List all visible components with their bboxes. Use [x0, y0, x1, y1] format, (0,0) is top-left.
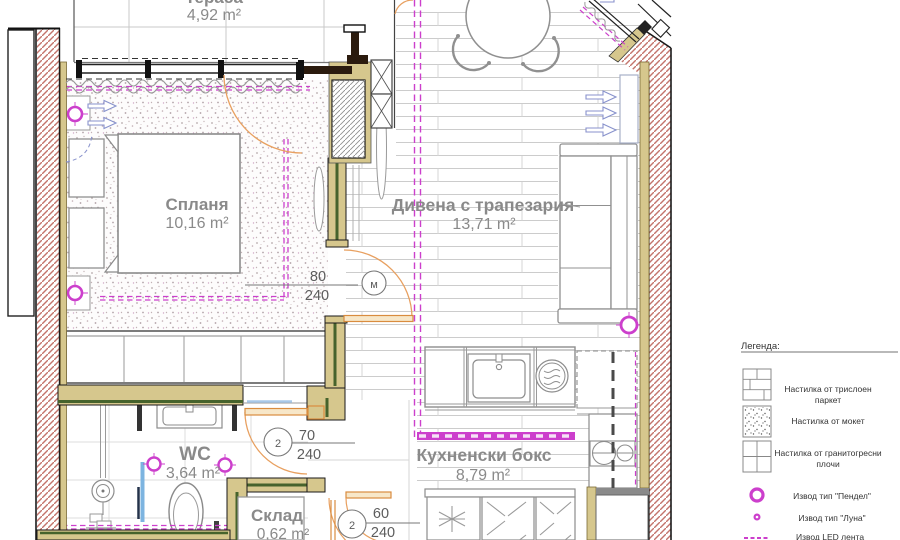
svg-text:60: 60: [373, 506, 389, 522]
svg-text:Тераса: Тераса: [185, 0, 243, 7]
svg-text:3,64 m²: 3,64 m²: [166, 465, 221, 482]
svg-text:WC: WC: [179, 444, 211, 465]
svg-text:240: 240: [305, 288, 329, 304]
svg-text:2: 2: [275, 438, 281, 450]
svg-text:Извод тип "Пендел": Извод тип "Пендел": [793, 491, 871, 501]
svg-text:Извод LED лента: Извод LED лента: [796, 532, 864, 540]
svg-text:Настилка от трислоен: Настилка от трислоен: [784, 384, 872, 394]
svg-text:240: 240: [371, 525, 395, 540]
svg-text:Склад: Склад: [251, 506, 303, 525]
svg-text:80: 80: [310, 269, 326, 285]
svg-text:8,79 m²: 8,79 m²: [456, 467, 511, 484]
svg-text:Настилка от гранитогресни: Настилка от гранитогресни: [774, 448, 882, 458]
svg-text:Дивена с трапезария: Дивена с трапезария: [392, 195, 574, 215]
svg-text:плочи: плочи: [816, 459, 840, 469]
svg-text:Кухненски бокс: Кухненски бокс: [416, 445, 551, 465]
svg-text:240: 240: [297, 447, 321, 463]
svg-text:2: 2: [349, 520, 355, 532]
svg-text:Настилка от мокет: Настилка от мокет: [791, 416, 864, 426]
svg-text:4,92 m²: 4,92 m²: [187, 7, 242, 24]
svg-text:Легенда:: Легенда:: [741, 341, 780, 352]
svg-text:10,16 m²: 10,16 m²: [165, 215, 229, 232]
svg-text:Спланя: Спланя: [166, 195, 229, 214]
svg-text:70: 70: [299, 428, 315, 444]
svg-text:Извод тип "Луна": Извод тип "Луна": [798, 513, 865, 523]
svg-text:м: м: [370, 279, 378, 291]
svg-text:0,62 m²: 0,62 m²: [257, 526, 310, 540]
svg-text:паркет: паркет: [815, 395, 841, 405]
svg-text:13,71 m²: 13,71 m²: [452, 216, 516, 233]
